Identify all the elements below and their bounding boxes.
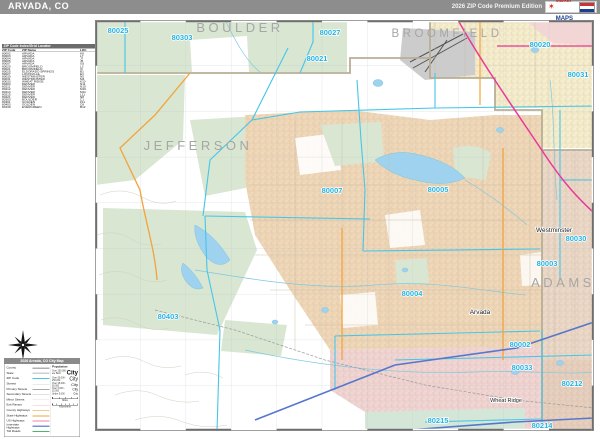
city-label-arvada: Arvada	[470, 309, 491, 316]
zip-label-80021: 80021	[307, 54, 328, 63]
made-in-usa-badge	[579, 2, 595, 13]
legend-line-swatch	[33, 367, 50, 369]
city-size-sample: City	[67, 369, 78, 376]
legend-line-swatch	[33, 426, 50, 428]
map-canvas: BOULDER BROOMFIELD JEFFERSON ADAMS 80025…	[95, 20, 594, 431]
map-legend: 2026 Arvada, CO City Map County State	[4, 358, 80, 437]
table-row: 80439 EVERGREEN B12	[2, 106, 95, 109]
zip-label-80003: 80003	[537, 259, 558, 268]
zip-label-80031: 80031	[568, 70, 589, 79]
legend-line-swatch	[33, 431, 50, 432]
legend-line-swatch	[33, 421, 50, 422]
scale-kilometers: Kilometers	[52, 404, 78, 409]
zip-label-80215: 80215	[428, 416, 449, 425]
legend-line-swatch	[33, 410, 50, 411]
legend-line-swatch	[33, 405, 50, 406]
logo-star-icon: ✶	[548, 3, 555, 11]
legend-line-swatch	[33, 394, 50, 395]
zip-label-80002: 80002	[510, 340, 531, 349]
population-row: Over 250,000 are Bold City	[52, 369, 78, 376]
zip-label-80027: 80027	[320, 28, 341, 37]
county-label-broomfield: BROOMFIELD	[391, 28, 502, 40]
marketmaps-logo: ✶ Market MAPS	[545, 1, 597, 13]
county-label-jefferson: JEFFERSON	[144, 138, 253, 153]
city-size-sample: City	[73, 393, 78, 396]
scale-miles: Miles	[52, 397, 78, 402]
edition-label: 2026 ZIP Code Premium Edition	[452, 4, 542, 10]
zip-label-80025: 80025	[108, 26, 129, 35]
legend-line-swatch	[33, 378, 50, 379]
county-label-boulder: BOULDER	[196, 20, 283, 35]
legend-row: Toll Roads	[7, 429, 51, 434]
zip-table-body: 80002 ARVADA K8 80003 ARVADA L7 80004 AR…	[2, 53, 95, 109]
legend-symbol-list: County State ZIP Code Streets	[7, 366, 51, 435]
legend-line-swatch	[33, 373, 50, 375]
legend-line-swatch	[33, 415, 50, 416]
zip-index-table: ZIP Code Index/Grid Locator ZIP Code ZIP…	[2, 44, 95, 109]
city-size-sample: City	[72, 388, 78, 392]
population-list: Over 250,000 are Bold City Over 50,000 -…	[52, 369, 78, 396]
title-bar: ARVADA, CO 2026 ZIP Code Premium Edition…	[0, 0, 600, 14]
logo-word-market: Market	[556, 0, 571, 4]
city-size-sample: City	[69, 377, 78, 383]
legend-line-swatch	[33, 384, 50, 385]
city-label-wheat-ridge: Wheat Ridge	[490, 398, 522, 404]
zip-label-80212: 80212	[562, 379, 583, 388]
legend-line-swatch	[33, 400, 50, 401]
zip-label-80007: 80007	[322, 186, 343, 195]
zip-label-80033: 80033	[512, 363, 533, 372]
zip-label-80303: 80303	[172, 33, 193, 42]
zip-label-80030: 80030	[566, 234, 587, 243]
population-row: Over 5,000 - 25,000 City	[52, 388, 78, 393]
zip-label-80020: 80020	[530, 40, 551, 49]
county-label-adams: ADAMS	[531, 275, 594, 290]
legend-line-swatch	[33, 389, 50, 390]
city-label-westminster: Westminster	[536, 227, 573, 234]
page-title: ARVADA, CO	[8, 1, 69, 11]
zip-label-80214: 80214	[532, 421, 554, 430]
zip-label-80403: 80403	[158, 312, 179, 321]
zip-label-80004: 80004	[402, 289, 424, 298]
arvada-zip-map: BOULDER BROOMFIELD JEFFERSON ADAMS 80025…	[95, 20, 594, 431]
left-panel: ZIP Code Index/Grid Locator ZIP Code ZIP…	[0, 14, 95, 439]
city-size-sample: City	[71, 383, 78, 388]
population-row: Under 5,000 City	[52, 393, 78, 396]
compass-rose-icon	[8, 330, 38, 360]
zip-label-80005: 80005	[428, 185, 449, 194]
